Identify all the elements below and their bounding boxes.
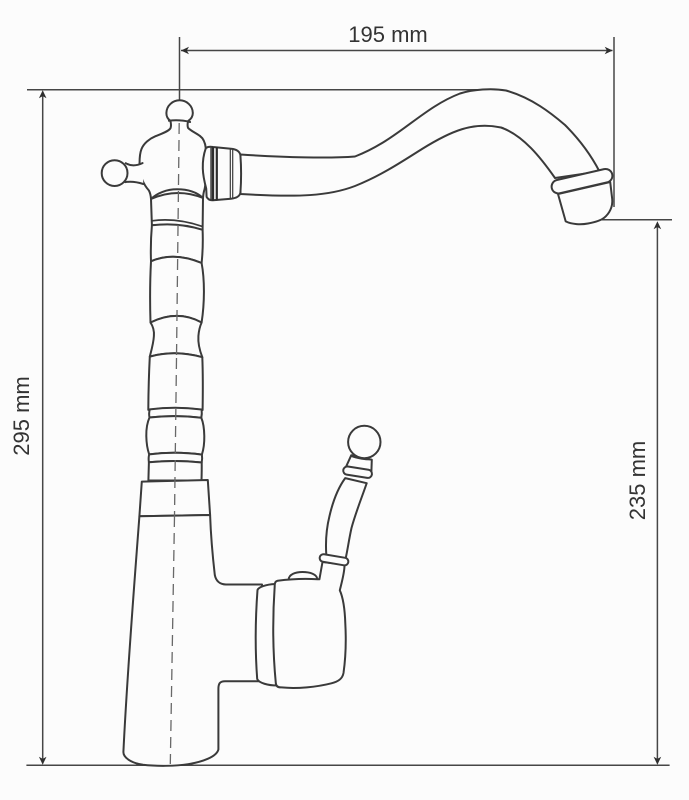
svg-text:195 mm: 195 mm [348,22,427,47]
svg-text:235 mm: 235 mm [625,441,650,520]
svg-text:295 mm: 295 mm [9,376,34,455]
